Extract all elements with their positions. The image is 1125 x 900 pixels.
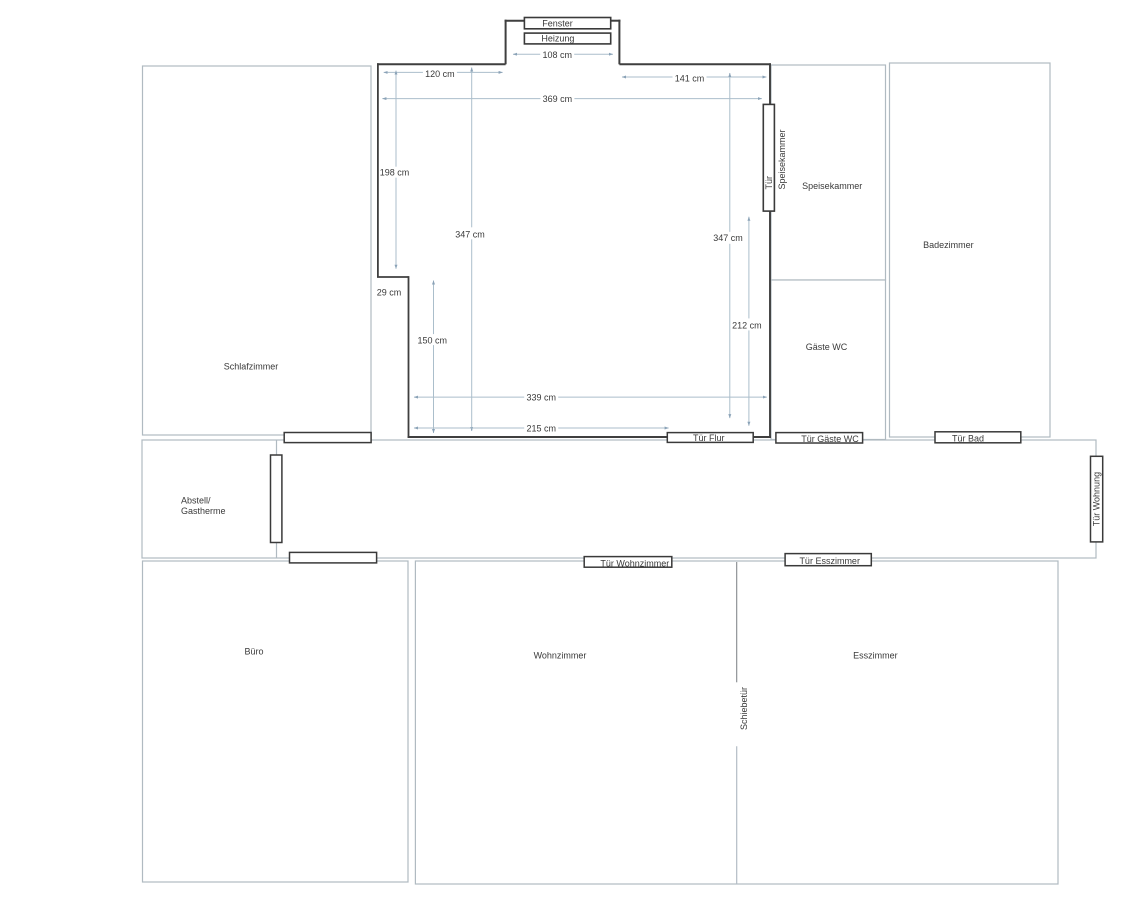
svg-text:198 cm: 198 cm bbox=[380, 168, 410, 178]
svg-text:Tür Gäste WC: Tür Gäste WC bbox=[801, 434, 859, 444]
svg-text:Esszimmer: Esszimmer bbox=[853, 650, 898, 660]
svg-text:212 cm: 212 cm bbox=[732, 320, 762, 330]
svg-text:Tür Esszimmer: Tür Esszimmer bbox=[799, 556, 860, 566]
svg-text:347 cm: 347 cm bbox=[455, 229, 485, 239]
svg-text:Gastherme: Gastherme bbox=[181, 506, 226, 516]
svg-text:Badezimmer: Badezimmer bbox=[923, 240, 974, 250]
svg-text:Tür Wohnung: Tür Wohnung bbox=[1092, 472, 1102, 526]
svg-text:Schlafzimmer: Schlafzimmer bbox=[224, 362, 279, 372]
svg-text:347 cm: 347 cm bbox=[713, 233, 743, 243]
svg-text:Tür: Tür bbox=[764, 176, 774, 190]
svg-text:Gäste WC: Gäste WC bbox=[806, 342, 848, 352]
svg-text:339 cm: 339 cm bbox=[526, 393, 556, 403]
svg-text:Tür Flur: Tür Flur bbox=[693, 433, 725, 443]
svg-text:Abstell/: Abstell/ bbox=[181, 496, 211, 506]
svg-text:120 cm: 120 cm bbox=[425, 69, 455, 79]
svg-text:108 cm: 108 cm bbox=[542, 50, 572, 60]
svg-text:Schiebetür: Schiebetür bbox=[739, 687, 749, 730]
svg-text:369 cm: 369 cm bbox=[543, 94, 573, 104]
svg-text:Tür Wohnzimmer: Tür Wohnzimmer bbox=[600, 558, 669, 568]
svg-text:Heizung: Heizung bbox=[541, 34, 574, 44]
svg-text:150 cm: 150 cm bbox=[417, 336, 447, 346]
svg-text:Speisekammer: Speisekammer bbox=[802, 181, 862, 191]
svg-text:Büro: Büro bbox=[244, 646, 263, 656]
svg-text:141 cm: 141 cm bbox=[675, 74, 705, 84]
svg-text:Speisekammer: Speisekammer bbox=[777, 129, 787, 189]
svg-text:Tür Bad: Tür Bad bbox=[952, 433, 984, 443]
svg-text:29 cm: 29 cm bbox=[377, 288, 402, 298]
svg-text:Fenster: Fenster bbox=[542, 18, 573, 28]
svg-text:215 cm: 215 cm bbox=[526, 423, 556, 433]
svg-text:Wohnzimmer: Wohnzimmer bbox=[534, 650, 587, 660]
